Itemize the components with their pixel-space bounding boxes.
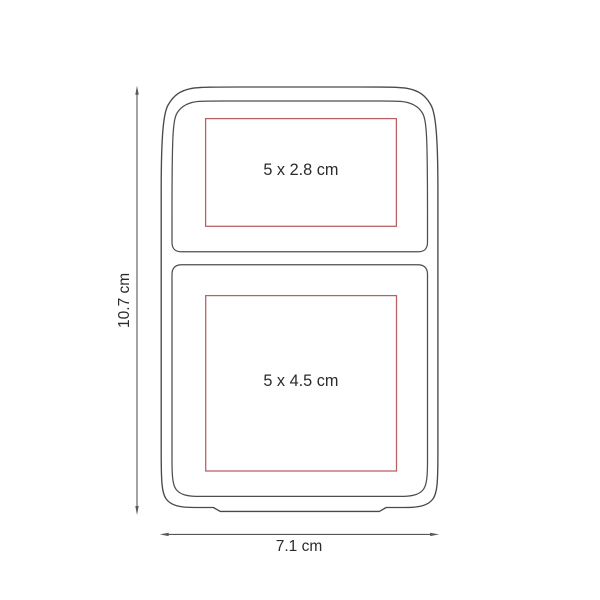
svg-text:5 x 2.8 cm: 5 x 2.8 cm	[263, 161, 338, 179]
svg-text:7.1 cm: 7.1 cm	[276, 538, 323, 555]
svg-text:5 x 4.5 cm: 5 x 4.5 cm	[263, 372, 338, 390]
svg-text:10.7 cm: 10.7 cm	[116, 273, 133, 328]
